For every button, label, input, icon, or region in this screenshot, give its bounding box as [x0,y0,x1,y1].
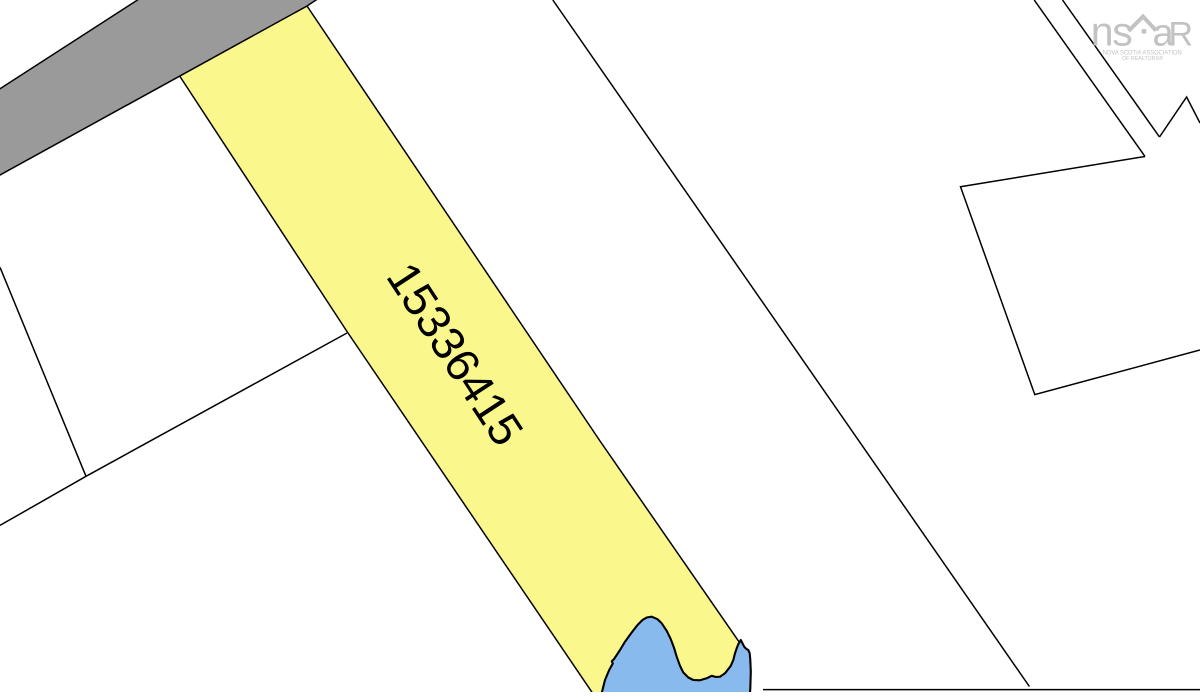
svg-text:ns: ns [1091,9,1133,55]
svg-text:R: R [1169,16,1194,54]
svg-text:OF REALTORS®: OF REALTORS® [1122,55,1164,62]
